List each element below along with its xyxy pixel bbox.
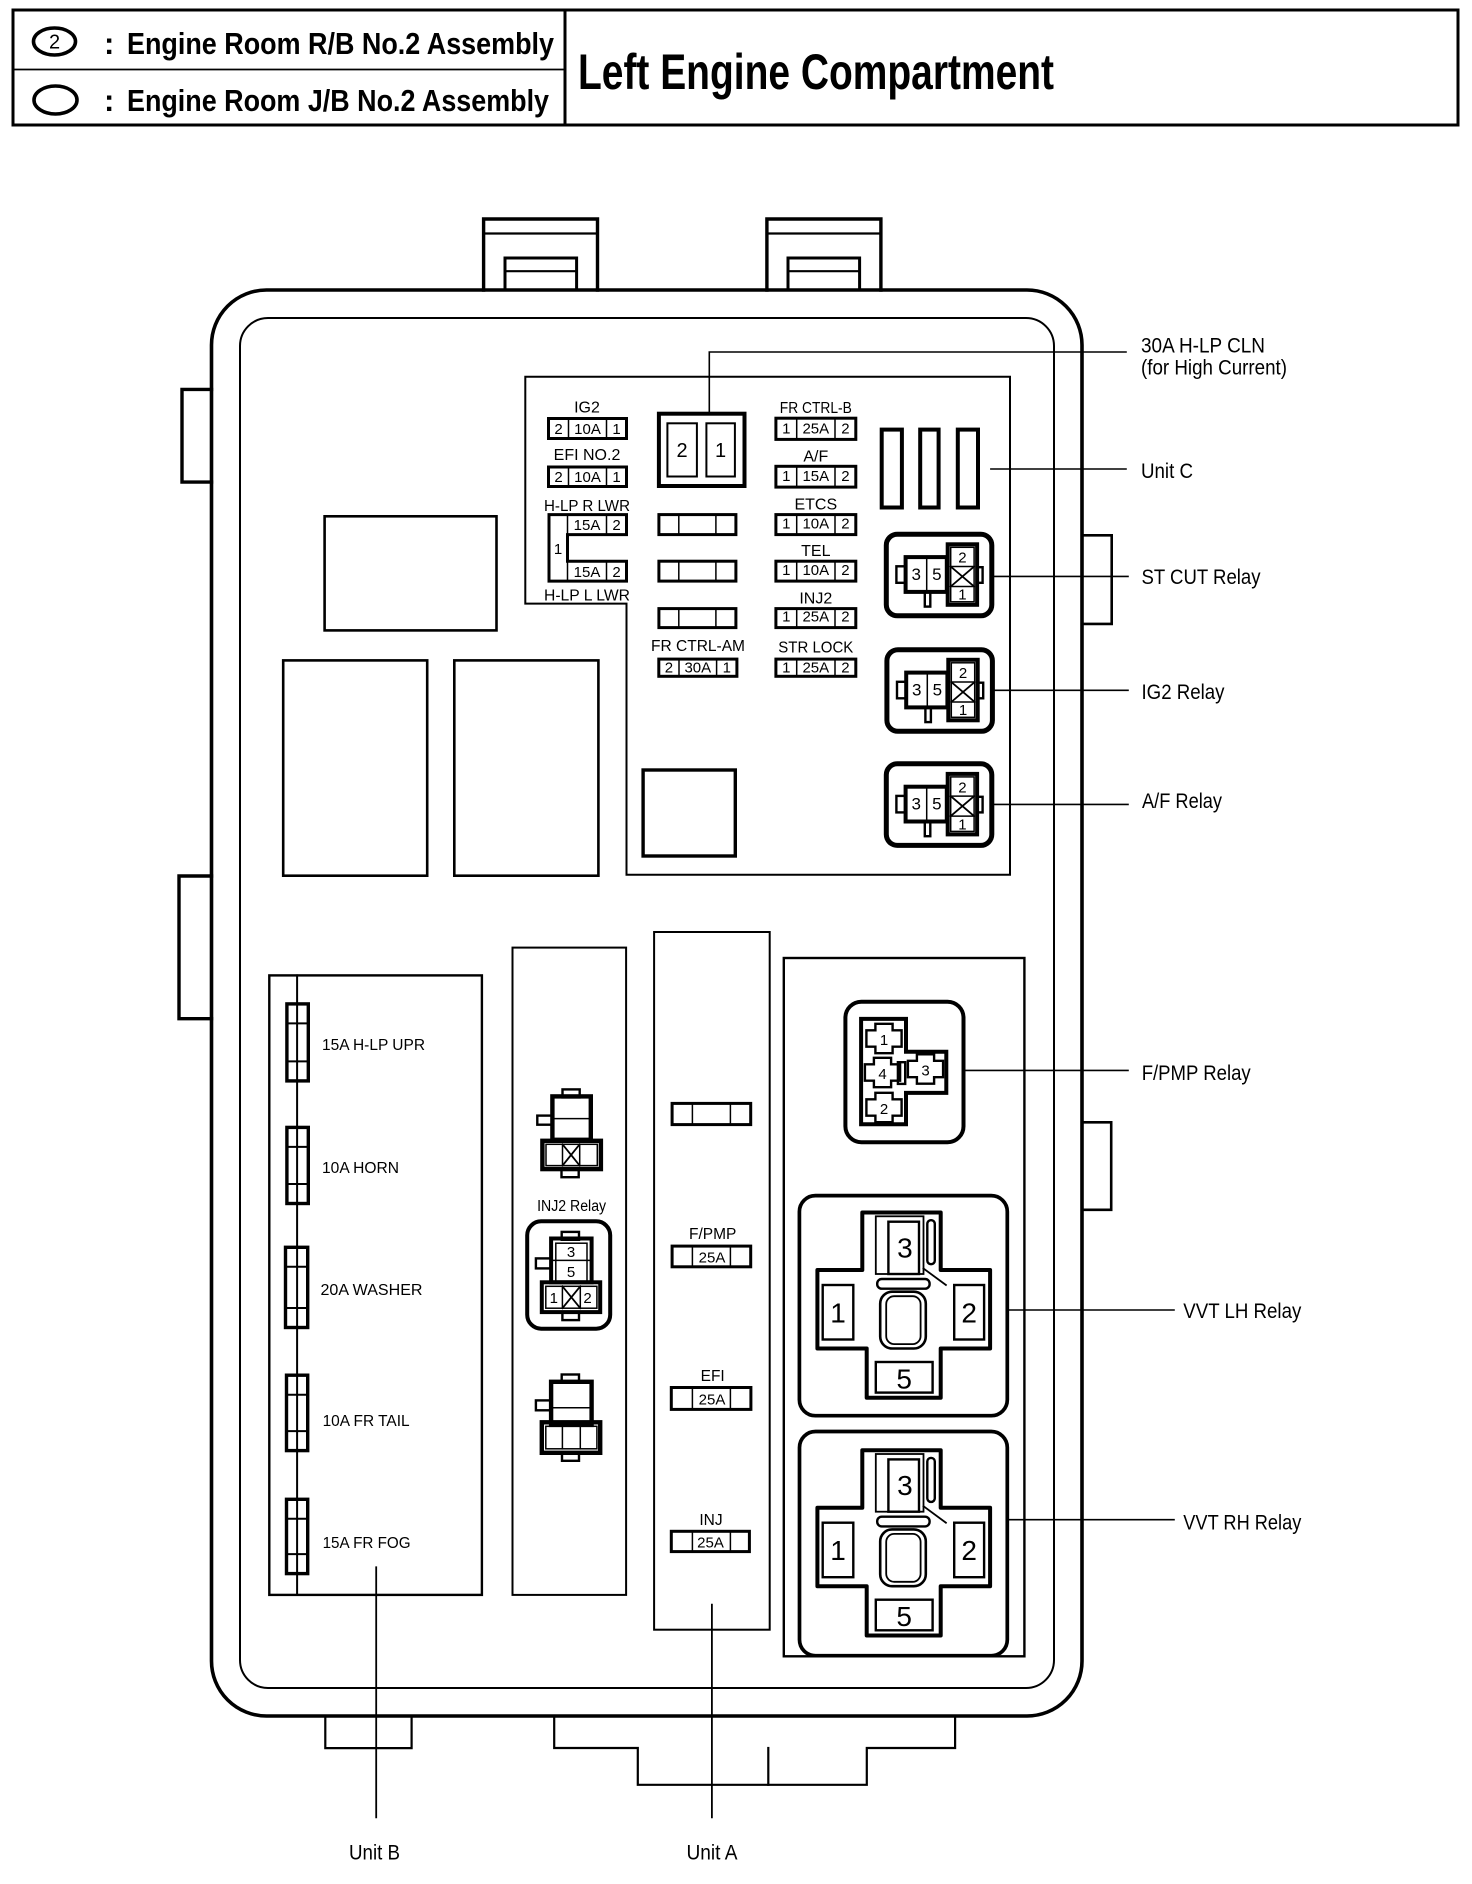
- svg-text:25A: 25A: [699, 1392, 726, 1409]
- svg-text:INJ2 Relay: INJ2 Relay: [537, 1198, 606, 1215]
- svg-text:25A: 25A: [802, 660, 829, 677]
- svg-text:VVT LH Relay: VVT LH Relay: [1183, 1300, 1301, 1323]
- svg-text:4: 4: [878, 1066, 886, 1083]
- svg-text:15A FR FOG: 15A FR FOG: [323, 1535, 411, 1552]
- svg-text:TEL: TEL: [801, 543, 830, 560]
- svg-text:INJ: INJ: [699, 1512, 722, 1529]
- svg-text:15A: 15A: [574, 517, 601, 534]
- svg-text:INJ2: INJ2: [799, 591, 832, 608]
- svg-text:FR CTRL-B: FR CTRL-B: [780, 400, 852, 417]
- svg-text:1: 1: [612, 421, 620, 438]
- svg-text:1: 1: [612, 469, 620, 486]
- svg-text:2: 2: [841, 609, 849, 626]
- svg-text:1: 1: [782, 468, 790, 485]
- svg-text:STR LOCK: STR LOCK: [778, 640, 853, 657]
- svg-text:1: 1: [782, 516, 790, 533]
- svg-text:10A: 10A: [574, 421, 601, 438]
- svg-text:2: 2: [841, 562, 849, 579]
- svg-text:1: 1: [782, 420, 790, 437]
- svg-text:1: 1: [550, 1290, 558, 1307]
- svg-text:Left Engine Compartment: Left Engine Compartment: [578, 44, 1054, 100]
- svg-text:2: 2: [665, 660, 673, 677]
- svg-text:15A: 15A: [574, 564, 601, 581]
- svg-text:1: 1: [554, 541, 562, 558]
- svg-text:A/F: A/F: [803, 448, 828, 465]
- svg-text:VVT RH Relay: VVT RH Relay: [1183, 1512, 1301, 1535]
- svg-text:EFI NO.2: EFI NO.2: [554, 447, 621, 464]
- svg-text::: :: [104, 26, 114, 61]
- svg-text:3: 3: [567, 1244, 575, 1261]
- svg-text:10A: 10A: [802, 562, 829, 579]
- svg-text:15A: 15A: [802, 468, 829, 485]
- svg-text:FR CTRL-AM: FR CTRL-AM: [651, 638, 745, 655]
- svg-text:A/F Relay: A/F Relay: [1142, 790, 1222, 813]
- svg-text:10A: 10A: [802, 516, 829, 533]
- svg-text:3: 3: [921, 1063, 929, 1080]
- svg-text:Unit C: Unit C: [1141, 460, 1193, 483]
- svg-text:25A: 25A: [802, 420, 829, 437]
- svg-text:ST CUT Relay: ST CUT Relay: [1142, 566, 1261, 589]
- svg-text:EFI: EFI: [701, 1368, 725, 1385]
- svg-text:ETCS: ETCS: [794, 497, 837, 514]
- svg-text:2: 2: [554, 421, 562, 438]
- svg-text:F/PMP Relay: F/PMP Relay: [1142, 1062, 1251, 1085]
- svg-text::: :: [104, 83, 114, 118]
- svg-text:F/PMP: F/PMP: [689, 1226, 736, 1243]
- svg-text:1: 1: [715, 440, 726, 462]
- svg-text:25A: 25A: [697, 1535, 724, 1552]
- svg-text:1: 1: [782, 660, 790, 677]
- svg-text:25A: 25A: [699, 1250, 726, 1267]
- svg-text:10A: 10A: [574, 469, 601, 486]
- svg-text:2: 2: [554, 469, 562, 486]
- svg-text:2: 2: [612, 517, 620, 534]
- svg-text:5: 5: [567, 1264, 575, 1281]
- svg-text:2: 2: [583, 1290, 591, 1307]
- svg-text:Unit A: Unit A: [687, 1842, 738, 1865]
- svg-text:25A: 25A: [802, 609, 829, 626]
- svg-text:IG2 Relay: IG2 Relay: [1142, 681, 1225, 704]
- svg-text:20A WASHER: 20A WASHER: [321, 1282, 423, 1299]
- svg-text:1: 1: [723, 660, 731, 677]
- svg-text:1: 1: [782, 609, 790, 626]
- svg-text:2: 2: [676, 440, 687, 462]
- svg-text:H-LP R LWR: H-LP R LWR: [544, 498, 630, 515]
- svg-text:10A HORN: 10A HORN: [322, 1160, 399, 1177]
- svg-text:2: 2: [841, 468, 849, 485]
- svg-text:Engine Room R/B No.2 Assembly: Engine Room R/B No.2 Assembly: [127, 26, 555, 61]
- svg-text:15A H-LP UPR: 15A H-LP UPR: [322, 1037, 425, 1054]
- svg-text:2: 2: [880, 1101, 888, 1118]
- svg-text:10A FR TAIL: 10A FR TAIL: [323, 1413, 410, 1430]
- svg-text:2: 2: [841, 660, 849, 677]
- svg-text:Engine Room J/B No.2 Assembly: Engine Room J/B No.2 Assembly: [127, 83, 550, 118]
- svg-text:2: 2: [841, 420, 849, 437]
- svg-text:2: 2: [612, 564, 620, 581]
- svg-text:1: 1: [880, 1032, 888, 1049]
- svg-text:(for High Current): (for High Current): [1141, 357, 1287, 380]
- svg-text:2: 2: [49, 32, 60, 54]
- svg-text:30A H-LP CLN: 30A H-LP CLN: [1141, 335, 1265, 358]
- svg-text:Unit B: Unit B: [349, 1842, 400, 1865]
- svg-text:IG2: IG2: [574, 400, 600, 417]
- svg-text:2: 2: [841, 516, 849, 533]
- svg-text:1: 1: [782, 562, 790, 579]
- svg-text:H-LP L LWR: H-LP L LWR: [544, 588, 630, 605]
- svg-text:30A: 30A: [684, 660, 711, 677]
